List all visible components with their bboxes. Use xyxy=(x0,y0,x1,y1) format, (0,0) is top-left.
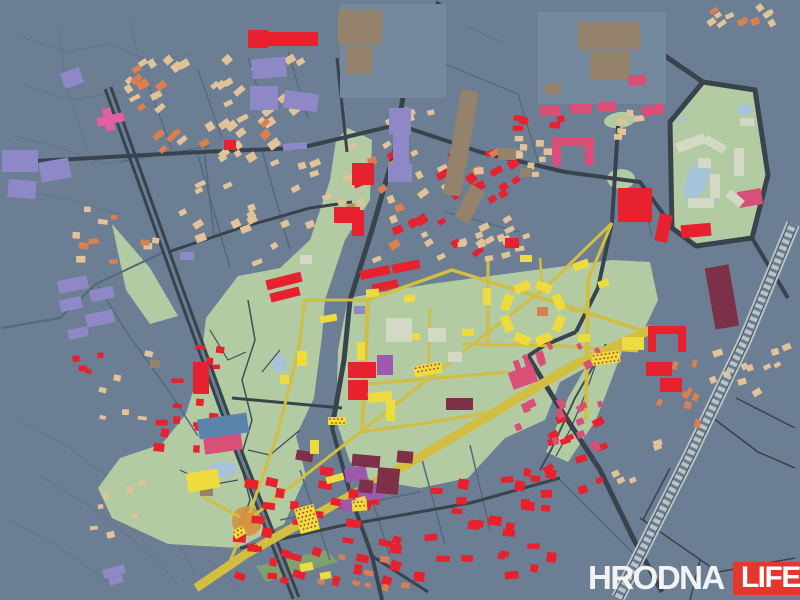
hrodna-city-map: HRODNA LIFE xyxy=(0,0,800,600)
logo-hrodna-text: HRODNA xyxy=(588,559,724,597)
site-logo: HRODNA LIFE xyxy=(588,559,800,597)
logo-life-badge: LIFE xyxy=(733,562,800,595)
city-map-canvas xyxy=(0,0,800,600)
